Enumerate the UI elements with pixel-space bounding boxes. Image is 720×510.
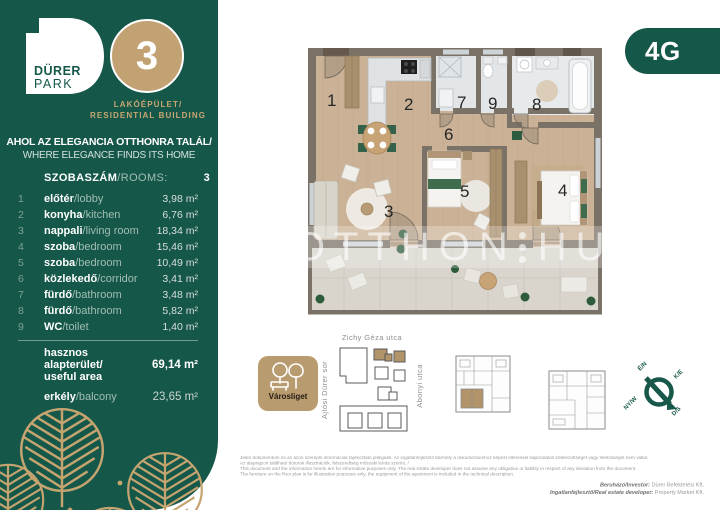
table-divider [18,340,198,341]
header-hu: SZOBASZÁM [44,172,117,184]
table-row: 4szoba/bedroom15,46 m² [18,239,198,255]
room-number-5: 5 [460,182,469,201]
room-number-3: 3 [384,202,393,221]
compass-east: K/E [673,369,684,380]
table-row: 1előtér/lobby3,98 m² [18,191,198,207]
header-room-count: 3 [168,172,224,184]
compass-north: É/N [636,360,649,373]
unit-badge: 4G [625,28,720,74]
compass-icon: É/N K/E NY/W D/S [618,348,704,440]
summary-balcony: erkély/balcony 23,65 m² [44,391,198,403]
building-number: 3 [136,36,158,76]
unit-badge-label: 4G [625,36,681,67]
logo-line1: DÜRER [34,63,81,78]
table-row: 8fürdő/bathroom5,82 m² [18,303,198,319]
building-label-en: RESIDENTIAL BUILDING [88,110,208,121]
room-number-7: 7 [457,93,466,112]
summary-useful-area: hasznos alapterület/useful area 69,14 m² [44,347,198,383]
table-row: 9WC/toilet1,40 m² [18,319,198,335]
logo-line2: PARK [34,77,73,91]
investor-credit: Beruházó/Investor: Dürer Befektetési Kft… [400,482,704,489]
building-number-circle: 3 [110,19,184,93]
room-number-6: 6 [444,125,453,144]
disclaimer-text: Jelen dokumentum és az azon szereplő inf… [240,456,708,478]
site-plan: Zichy Géza utca Ajtósi Dürer sor Abonyi … [272,330,432,450]
floorplate-plain [545,367,609,433]
building-label: LAKÓÉPÜLET/ RESIDENTIAL BUILDING [88,99,208,121]
floorplate-highlighted [452,351,514,417]
durer-park-logo: DÜRER PARK [26,18,106,98]
room-number-9: 9 [488,94,497,113]
tagline: AHOL AZ ELEGANCIA OTTHONRA TALÁL/ WHERE … [0,136,218,161]
brochure-page: DÜRER PARK 3 LAKÓÉPÜLET/ RESIDENTIAL BUI… [0,0,720,510]
rooms-table-header: SZOBASZÁM/ROOMS: 3 [18,172,198,184]
table-row: 2konyha/kitchen6,76 m² [18,207,198,223]
watermark: UJOTTHON HU [219,226,671,268]
tagline-en: WHERE ELEGANCE FINDS ITS HOME [0,150,218,161]
rooms-table: SZOBASZÁM/ROOMS: 3 1előtér/lobby3,98 m² … [0,172,218,403]
compass-west: NY/W [623,396,639,412]
street-left-label: Ajtósi Dürer sor [320,361,329,419]
watermark-dots [519,232,526,263]
room-number-8: 8 [532,95,541,114]
watermark-right: HU [538,225,614,270]
floor-plan: 1 2 3 4 5 6 7 8 9 [283,33,613,333]
room-number-4: 4 [558,181,567,200]
building-label-hu: LAKÓÉPÜLET/ [88,99,208,110]
sidebar-panel: DÜRER PARK 3 LAKÓÉPÜLET/ RESIDENTIAL BUI… [0,0,218,510]
header-en: /ROOMS: [117,172,167,184]
room-number-2: 2 [404,95,413,114]
table-row: 6közlekedő/corridor3,41 m² [18,271,198,287]
site-buildings [340,348,407,431]
room-number-1: 1 [327,91,336,110]
street-top-label: Zichy Géza utca [342,333,403,342]
table-row: 7fürdő/bathroom3,48 m² [18,287,198,303]
tagline-hu: AHOL AZ ELEGANCIA OTTHONRA TALÁL/ [0,136,218,148]
watermark-left: UJOTTHON [227,225,517,270]
street-right-label: Abonyi utca [415,364,424,408]
developer-credit: Ingatlanfejlesztő/Real estate developer:… [400,489,704,496]
credits: Beruházó/Investor: Dürer Befektetési Kft… [400,482,704,497]
table-row: 5szoba/bedroom10,49 m² [18,255,198,271]
table-row: 3nappali/living room18,34 m² [18,223,198,239]
